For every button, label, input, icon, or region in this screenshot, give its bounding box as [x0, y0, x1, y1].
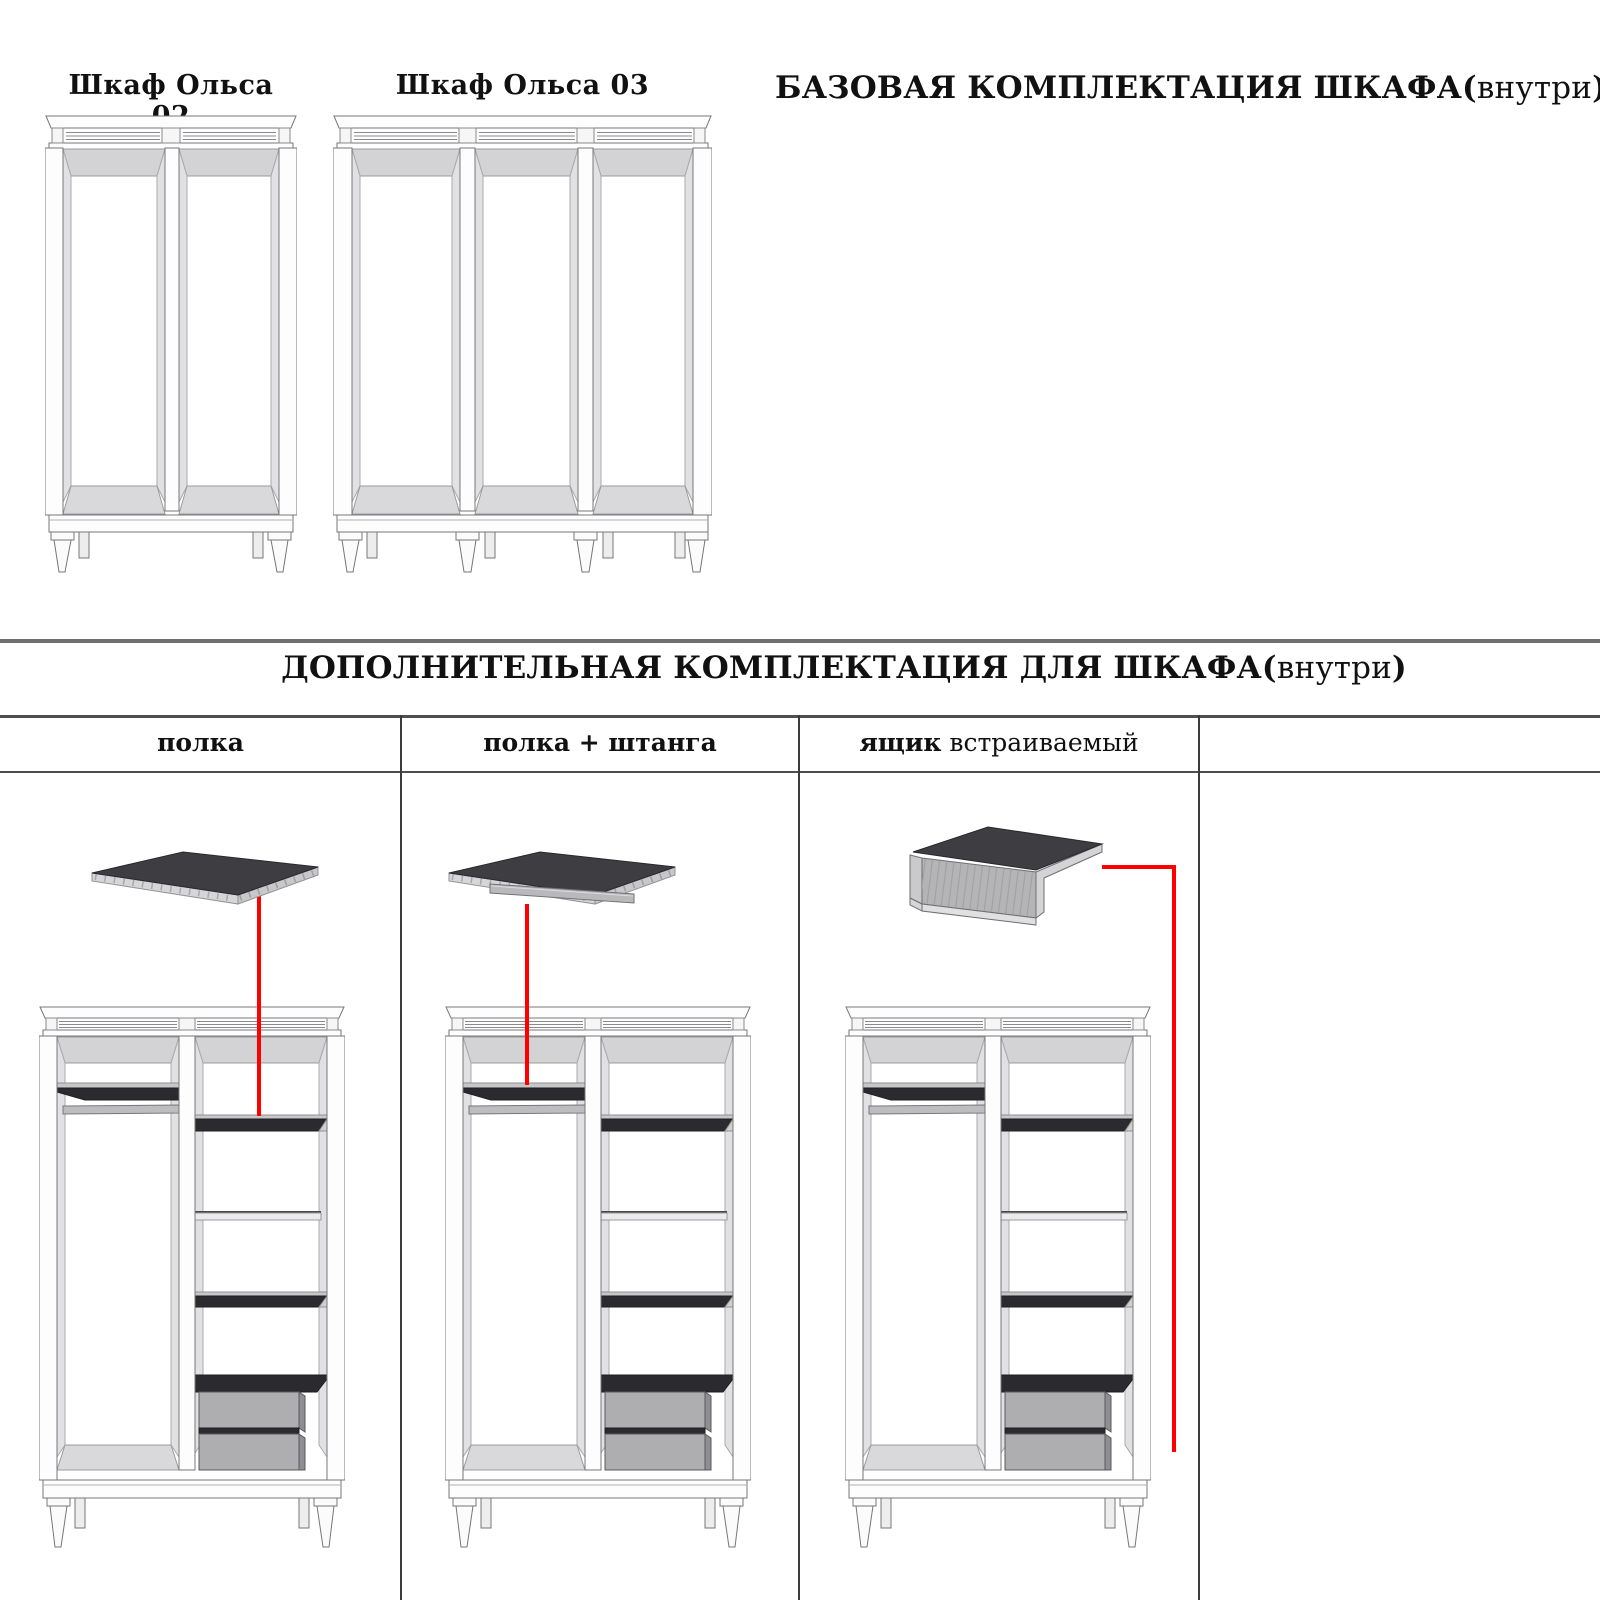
fitted-wardrobe-drawing: [445, 1007, 751, 1547]
base-heading-close: ): [1592, 70, 1600, 106]
fitted-wardrobe-drawing: [845, 1007, 1151, 1547]
table-header-border: [0, 771, 1600, 773]
section-divider: [0, 639, 1600, 643]
extras-heading-close: ): [1392, 650, 1407, 686]
column-line-1: [400, 715, 402, 1600]
base-heading-light: внутри: [1477, 70, 1592, 106]
base-heading-bold: БАЗОВАЯ КОМПЛЕКТАЦИЯ ШКАФА(: [775, 70, 1477, 106]
catalog-page: Шкаф Ольса 02 Шкаф Ольса 03 БАЗОВАЯ КОМП…: [0, 0, 1600, 1600]
column-line-3: [1198, 715, 1200, 1600]
extras-heading-bold: ДОПОЛНИТЕЛЬНАЯ КОМПЛЕКТАЦИЯ ДЛЯ ШКАФА(: [281, 650, 1277, 686]
header-cell-shelf-rod: полка + штанга: [401, 728, 799, 757]
table-top-border: [0, 715, 1600, 718]
header-shelf-rod-bold: полка + штанга: [483, 728, 717, 757]
diagram-shelf-option: [20, 780, 400, 1600]
header-drawer-bold: ящик: [859, 728, 941, 757]
fitted-wardrobe-drawing: [39, 1007, 345, 1547]
drawer-illustration: [910, 827, 1102, 925]
diagram-shelf-rod-option: [410, 780, 790, 1600]
wardrobe-03-title: Шкаф Ольса 03: [333, 70, 712, 101]
extras-section-heading: ДОПОЛНИТЕЛЬНАЯ КОМПЛЕКТАЦИЯ ДЛЯ ШКАФА(вн…: [244, 650, 1444, 686]
wardrobe-02-drawing: [45, 114, 297, 574]
diagram-drawer-option: [810, 780, 1190, 1600]
header-cell-shelf: полка: [0, 728, 401, 757]
shelf-illustration: [92, 852, 318, 904]
extras-heading-light: внутри: [1277, 650, 1392, 686]
header-shelf-bold: полка: [157, 728, 244, 757]
header-cell-drawer: ящик встраиваемый: [799, 728, 1199, 757]
header-drawer-light: встраиваемый: [941, 728, 1138, 757]
base-section-heading: БАЗОВАЯ КОМПЛЕКТАЦИЯ ШКАФА(внутри): [775, 70, 1600, 106]
column-line-2: [798, 715, 800, 1600]
wardrobe-03-drawing: [333, 114, 712, 574]
